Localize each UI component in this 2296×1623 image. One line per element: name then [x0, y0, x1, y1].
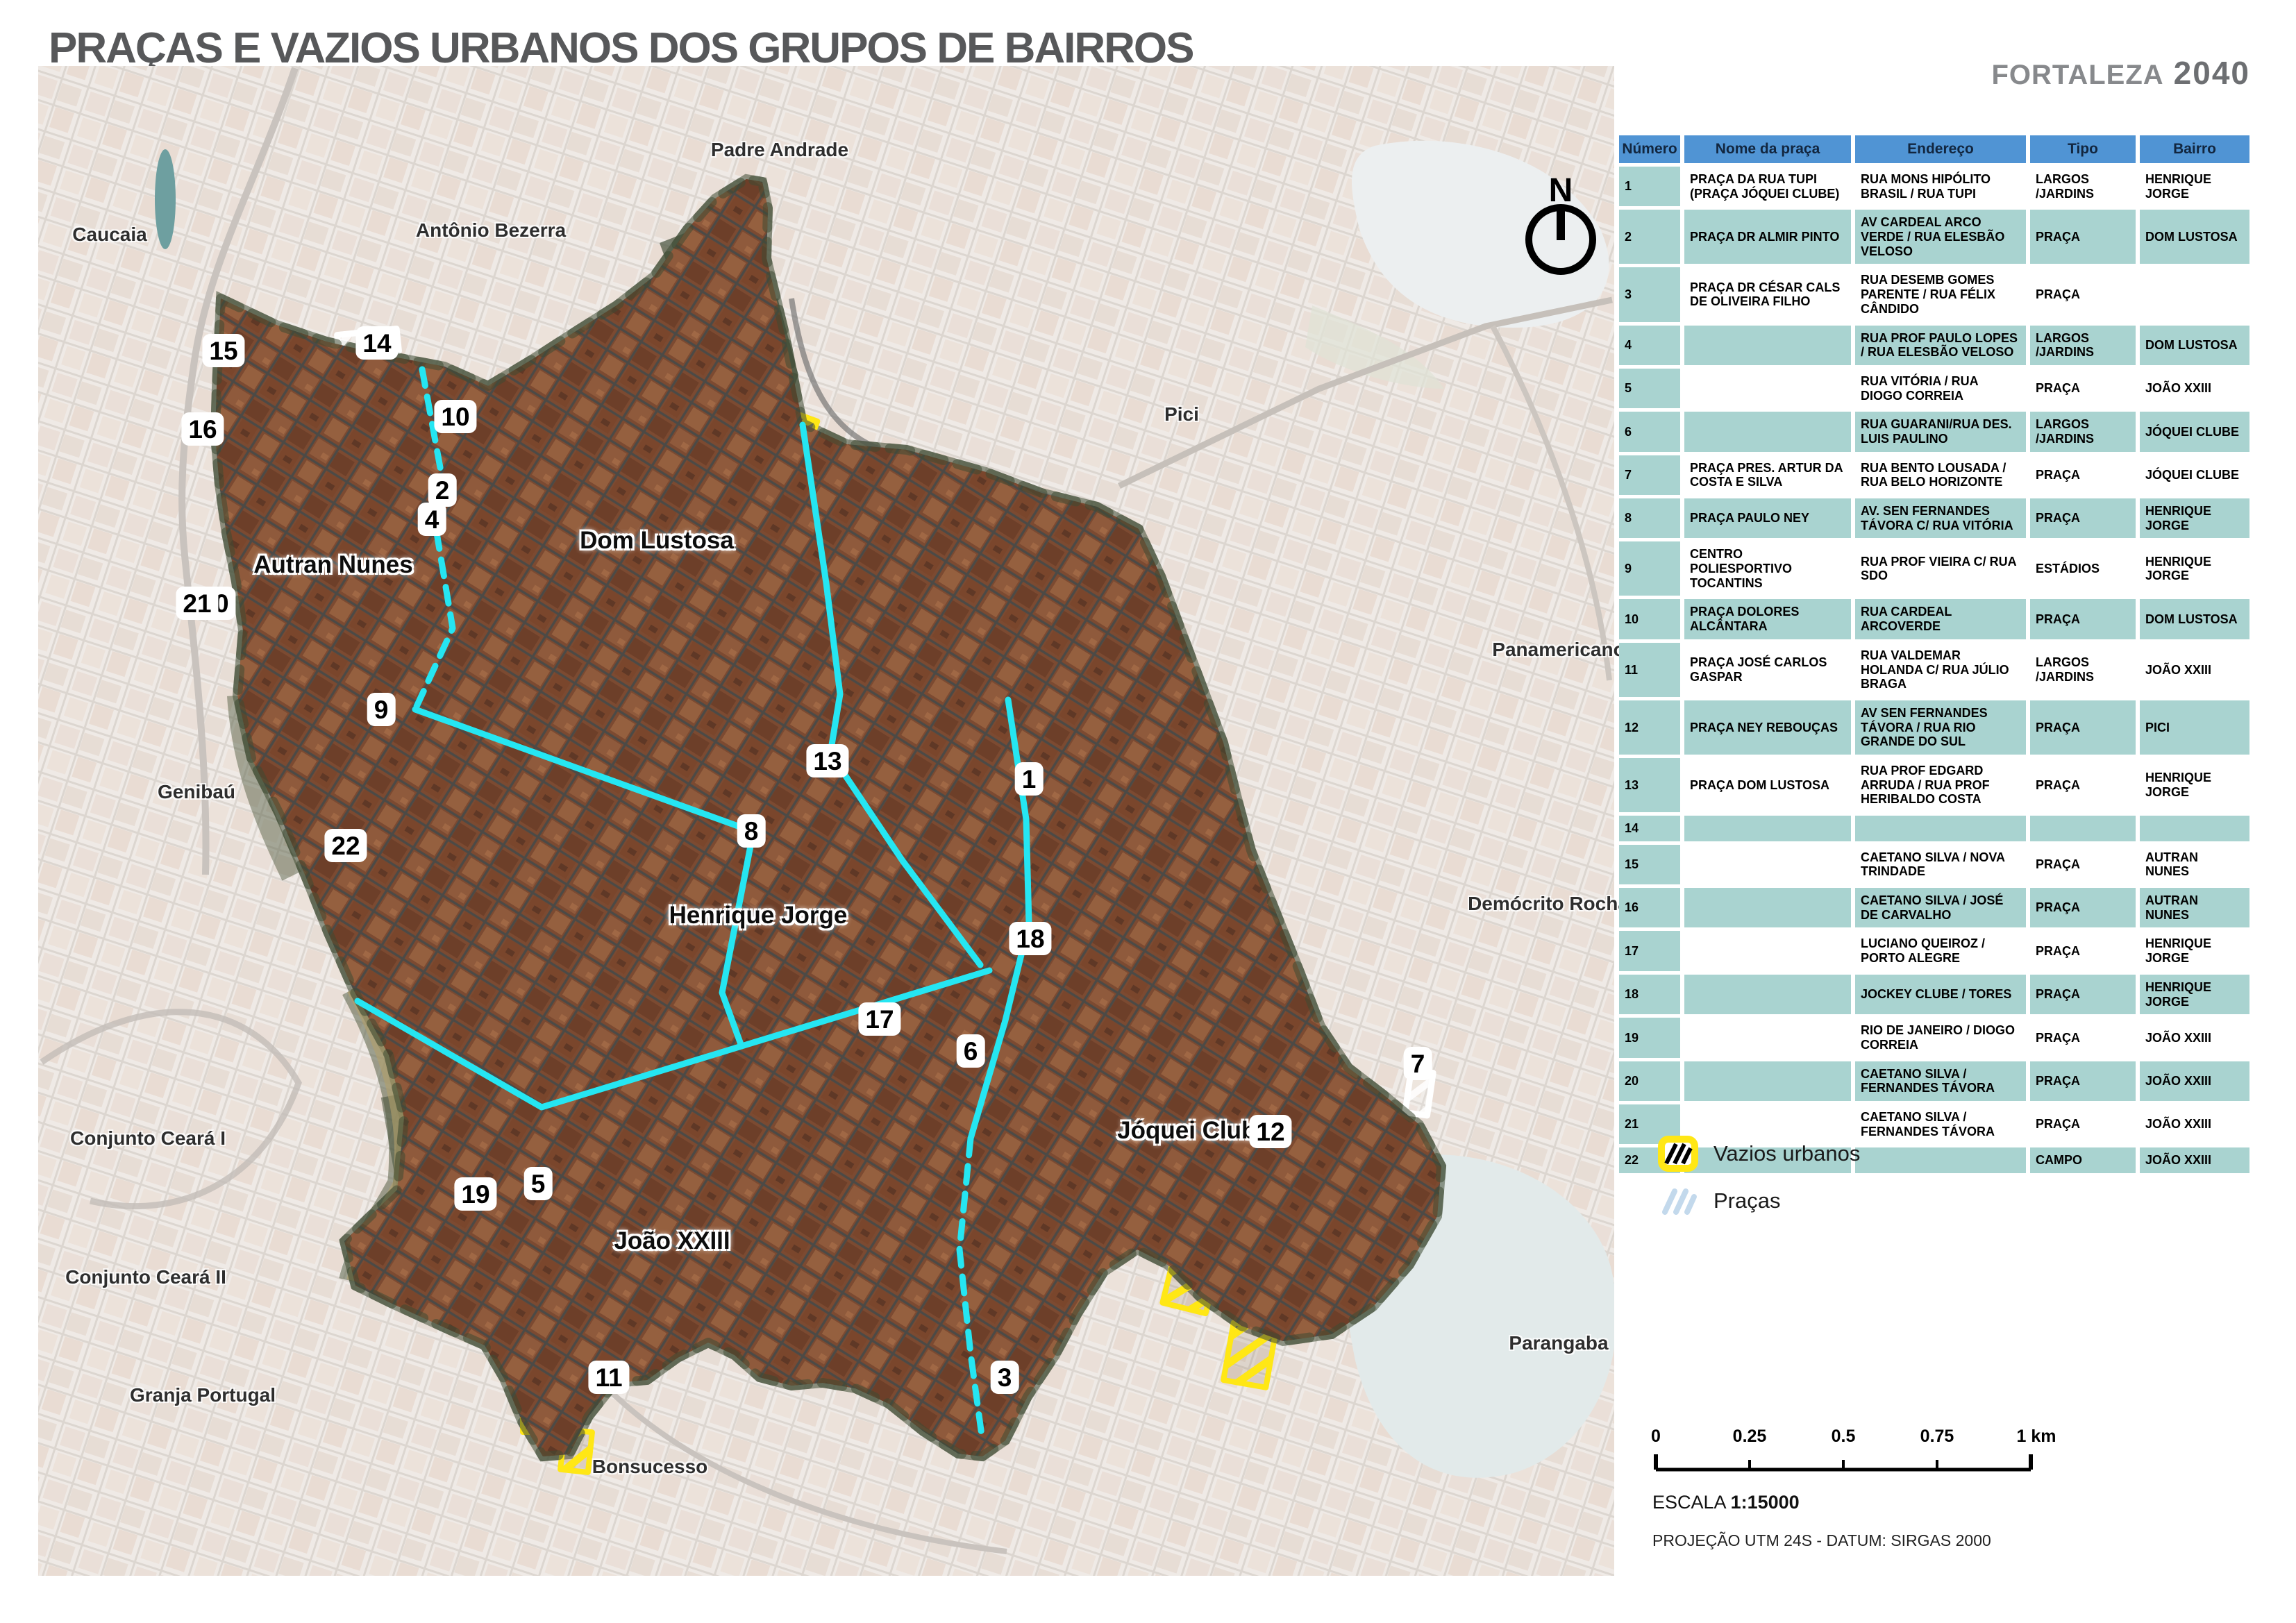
cell-nome [1684, 412, 1851, 451]
cell-tipo: PRAÇA [2030, 700, 2136, 755]
cell-nome [1684, 1018, 1851, 1057]
scale-tick-labels: 0 0.25 0.5 0.75 1 km [1652, 1427, 2097, 1450]
table-row: 17LUCIANO QUEIROZ / PORTO ALEGREPRAÇAHEN… [1619, 931, 2249, 970]
cell-numero: 17 [1619, 931, 1680, 970]
cell-tipo: PRAÇA [2030, 455, 2136, 495]
cell-numero: 6 [1619, 412, 1680, 451]
escala-label: ESCALA [1652, 1492, 1725, 1513]
table-row: 9CENTRO POLIESPORTIVO TOCANTINSRUA PROF … [1619, 541, 2249, 596]
cell-bairro: HENRIQUE JORGE [2140, 498, 2249, 538]
cell-endereco: RUA BENTO LOUSADA / RUA BELO HORIZONTE [1855, 455, 2026, 495]
brand-logo: FORTALEZA 2040 [1991, 54, 2250, 92]
cell-numero: 13 [1619, 758, 1680, 812]
cell-bairro: HENRIQUE JORGE [2140, 541, 2249, 596]
cell-bairro: DOM LUSTOSA [2140, 326, 2249, 365]
brand-year: 2040 [2174, 54, 2250, 92]
cell-numero: 7 [1619, 455, 1680, 495]
area-label: Genibaú [158, 781, 235, 803]
cell-nome [1684, 816, 1851, 841]
table-row: 10PRAÇA DOLORES ALCÂNTARARUA CARDEAL ARC… [1619, 599, 2249, 639]
scale-tick-05: 0.5 [1832, 1427, 1856, 1447]
district-label: Autran Nunes [253, 551, 412, 579]
cell-endereco: RUA CARDEAL ARCOVERDE [1855, 599, 2026, 639]
table-row: 3PRAÇA DR CÉSAR CALS DE OLIVEIRA FILHORU… [1619, 267, 2249, 321]
cell-tipo [2030, 816, 2136, 841]
cell-numero: 3 [1619, 267, 1680, 321]
cell-tipo: PRAÇA [2030, 498, 2136, 538]
cell-bairro: AUTRAN NUNES [2140, 845, 2249, 884]
cell-tipo: PRAÇA [2030, 599, 2136, 639]
map-marker-1[interactable]: 1 [1015, 762, 1044, 796]
cell-bairro: HENRIQUE JORGE [2140, 975, 2249, 1014]
cell-endereco: RUA VALDEMAR HOLANDA C/ RUA JÚLIO BRAGA [1855, 643, 2026, 697]
cell-bairro: PICI [2140, 700, 2249, 755]
cell-nome: PRAÇA PAULO NEY [1684, 498, 1851, 538]
cell-numero: 2 [1619, 210, 1680, 264]
scale-tick-075: 0.75 [1920, 1427, 1954, 1447]
cell-endereco: CAETANO SILVA / FERNANDES TÁVORA [1855, 1061, 2026, 1101]
poster-page: PRAÇAS E VAZIOS URBANOS DOS GRUPOS DE BA… [0, 0, 2296, 1623]
area-label: Caucaia [72, 224, 146, 246]
cell-nome [1684, 1061, 1851, 1101]
map-overlay: CaucaiaPadre AndradeAntônio BezerraPiciP… [38, 66, 1614, 1576]
legend-vazios-label: Vazios urbanos [1713, 1141, 1860, 1166]
map-marker-21[interactable]: 21 [176, 587, 218, 620]
cell-tipo: PRAÇA [2030, 888, 2136, 927]
area-label: Antônio Bezerra [416, 219, 566, 242]
cell-numero: 8 [1619, 498, 1680, 538]
map-marker-16[interactable]: 16 [181, 412, 224, 446]
cell-bairro: JOÃO XXIII [2140, 1147, 2249, 1173]
cell-bairro: JOÃO XXIII [2140, 1018, 2249, 1057]
cell-endereco: RUA MONS HIPÓLITO BRASIL / RUA TUPI [1855, 167, 2026, 206]
map-marker-7[interactable]: 7 [1404, 1047, 1432, 1080]
cell-tipo: PRAÇA [2030, 845, 2136, 884]
scale-tick-0: 0 [1651, 1427, 1661, 1447]
cell-nome [1684, 888, 1851, 927]
scale-block: 0 0.25 0.5 0.75 1 km ESCALA 1:15000 PROJ… [1652, 1427, 2097, 1550]
cell-numero: 4 [1619, 326, 1680, 365]
table-row: 4RUA PROF PAULO LOPES / RUA ELESBÃO VELO… [1619, 326, 2249, 365]
cell-endereco: RUA PROF PAULO LOPES / RUA ELESBÃO VELOS… [1855, 326, 2026, 365]
cell-endereco [1855, 1147, 2026, 1173]
map-marker-3[interactable]: 3 [991, 1361, 1019, 1394]
cell-nome: PRAÇA DOLORES ALCÂNTARA [1684, 599, 1851, 639]
table-row: 7PRAÇA PRES. ARTUR DA COSTA E SILVARUA B… [1619, 455, 2249, 495]
cell-numero: 18 [1619, 975, 1680, 1014]
map-marker-19[interactable]: 19 [454, 1177, 496, 1211]
map-marker-18[interactable]: 18 [1009, 922, 1051, 955]
area-label: Panamericano [1492, 639, 1625, 661]
cell-endereco: RUA PROF VIEIRA C/ RUA SDO [1855, 541, 2026, 596]
cell-tipo: LARGOS /JARDINS [2030, 167, 2136, 206]
map-marker-14[interactable]: 14 [355, 326, 398, 360]
cell-nome [1684, 369, 1851, 408]
cell-tipo: PRAÇA [2030, 1018, 2136, 1057]
cell-tipo: PRAÇA [2030, 1104, 2136, 1144]
cell-bairro: DOM LUSTOSA [2140, 599, 2249, 639]
cell-endereco: RUA GUARANI/RUA DES. LUIS PAULINO [1855, 412, 2026, 451]
table-row: 8PRAÇA PAULO NEYAV. SEN FERNANDES TÁVORA… [1619, 498, 2249, 538]
cell-numero: 12 [1619, 700, 1680, 755]
vazios-urbanos-swatch-icon [1658, 1136, 1698, 1172]
map-marker-6[interactable]: 6 [957, 1034, 985, 1068]
column-header: Nome da praça [1684, 135, 1851, 163]
cell-nome: PRAÇA NEY REBOUÇAS [1684, 700, 1851, 755]
cell-endereco: JOCKEY CLUBE / TORES [1855, 975, 2026, 1014]
column-header: Número [1619, 135, 1680, 163]
cell-tipo: ESTÁDIOS [2030, 541, 2136, 596]
cell-nome: PRAÇA DR ALMIR PINTO [1684, 210, 1851, 264]
cell-numero: 11 [1619, 643, 1680, 697]
cell-nome: CENTRO POLIESPORTIVO TOCANTINS [1684, 541, 1851, 596]
cell-tipo: PRAÇA [2030, 1061, 2136, 1101]
table-row: 12PRAÇA NEY REBOUÇASAV SEN FERNANDES TÁV… [1619, 700, 2249, 755]
cell-numero: 15 [1619, 845, 1680, 884]
table-row: 20CAETANO SILVA / FERNANDES TÁVORAPRAÇAJ… [1619, 1061, 2249, 1101]
cell-numero: 9 [1619, 541, 1680, 596]
cell-tipo: PRAÇA [2030, 758, 2136, 812]
cell-numero: 10 [1619, 599, 1680, 639]
scale-bar-icon [1652, 1450, 2069, 1472]
cell-bairro [2140, 267, 2249, 321]
cell-bairro: JÓQUEI CLUBE [2140, 455, 2249, 495]
table-row: 11PRAÇA JOSÉ CARLOS GASPARRUA VALDEMAR H… [1619, 643, 2249, 697]
cell-bairro: JOÃO XXIII [2140, 1061, 2249, 1101]
cell-tipo: PRAÇA [2030, 975, 2136, 1014]
cell-nome: PRAÇA JOSÉ CARLOS GASPAR [1684, 643, 1851, 697]
area-label: Bonsucesso [592, 1456, 708, 1478]
scale-tick-1km: 1 km [2017, 1427, 2056, 1447]
map-marker-2[interactable]: 2 [428, 473, 457, 507]
cell-nome [1684, 326, 1851, 365]
table-row: 18JOCKEY CLUBE / TORESPRAÇAHENRIQUE JORG… [1619, 975, 2249, 1014]
table-row: 16CAETANO SILVA / JOSÉ DE CARVALHOPRAÇAA… [1619, 888, 2249, 927]
cell-bairro [2140, 816, 2249, 841]
cell-endereco: LUCIANO QUEIROZ / PORTO ALEGRE [1855, 931, 2026, 970]
district-label: Jóquei Clube [1117, 1117, 1270, 1145]
map-marker-12[interactable]: 12 [1249, 1115, 1291, 1148]
map-marker-4[interactable]: 4 [418, 503, 446, 536]
cell-nome [1684, 931, 1851, 970]
column-header: Bairro [2140, 135, 2249, 163]
cell-numero: 19 [1619, 1018, 1680, 1057]
cell-endereco: CAETANO SILVA / FERNANDES TÁVORA [1855, 1104, 2026, 1144]
cell-bairro: AUTRAN NUNES [2140, 888, 2249, 927]
table-row: 2PRAÇA DR ALMIR PINTOAV CARDEAL ARCO VER… [1619, 210, 2249, 264]
district-label: Dom Lustosa [580, 527, 734, 555]
cell-numero: 16 [1619, 888, 1680, 927]
cell-endereco: AV CARDEAL ARCO VERDE / RUA ELESBÃO VELO… [1855, 210, 2026, 264]
cell-numero: 20 [1619, 1061, 1680, 1101]
area-label: Parangaba [1509, 1332, 1608, 1354]
map-marker-22[interactable]: 22 [324, 829, 367, 862]
cell-bairro: JOÃO XXIII [2140, 1104, 2249, 1144]
map-marker-10[interactable]: 10 [434, 400, 476, 433]
cell-bairro: HENRIQUE JORGE [2140, 167, 2249, 206]
map-marker-5[interactable]: 5 [524, 1167, 553, 1200]
table-row: 14 [1619, 816, 2249, 841]
cell-bairro: JOÃO XXIII [2140, 643, 2249, 697]
district-label: Henrique Jorge [669, 902, 848, 930]
column-header: Tipo [2030, 135, 2136, 163]
legend-item-pracas: Praças [1658, 1183, 1860, 1219]
cell-endereco: CAETANO SILVA / NOVA TRINDADE [1855, 845, 2026, 884]
table-row: 6RUA GUARANI/RUA DES. LUIS PAULINOLARGOS… [1619, 412, 2249, 451]
map-legend: Vazios urbanos Praças [1658, 1136, 1860, 1230]
column-header: Endereço [1855, 135, 2026, 163]
cell-tipo: LARGOS /JARDINS [2030, 412, 2136, 451]
cell-nome [1684, 975, 1851, 1014]
cell-endereco: AV SEN FERNANDES TÁVORA / RUA RIO GRANDE… [1855, 700, 2026, 755]
cell-tipo: PRAÇA [2030, 931, 2136, 970]
area-label: Pici [1164, 403, 1199, 426]
cell-endereco: RIO DE JANEIRO / DIOGO CORREIA [1855, 1018, 2026, 1057]
legend-pracas-label: Praças [1713, 1188, 1780, 1213]
table-row: 15CAETANO SILVA / NOVA TRINDADEPRAÇAAUTR… [1619, 845, 2249, 884]
cell-bairro: HENRIQUE JORGE [2140, 758, 2249, 812]
cell-nome: PRAÇA DOM LUSTOSA [1684, 758, 1851, 812]
map-marker-8[interactable]: 8 [737, 814, 766, 848]
area-label: Demócrito Rocha [1468, 893, 1629, 915]
area-label: Padre Andrade [711, 139, 848, 161]
map-marker-11[interactable]: 11 [588, 1361, 629, 1394]
cell-tipo: PRAÇA [2030, 210, 2136, 264]
area-label: Conjunto Ceará II [65, 1266, 226, 1288]
cell-bairro: JOÃO XXIII [2140, 369, 2249, 408]
cell-endereco: RUA DESEMB GOMES PARENTE / RUA FÉLIX CÂN… [1855, 267, 2026, 321]
cell-nome [1684, 845, 1851, 884]
cell-tipo: PRAÇA [2030, 369, 2136, 408]
table-header: NúmeroNome da praçaEndereçoTipoBairro [1619, 135, 2249, 163]
brand-name: FORTALEZA [1991, 60, 2163, 91]
area-label: Conjunto Ceará I [70, 1127, 226, 1150]
escala-value: 1:15000 [1731, 1492, 1800, 1513]
cell-endereco [1855, 816, 2026, 841]
projection-note: PROJEÇÃO UTM 24S - DATUM: SIRGAS 2000 [1652, 1531, 2097, 1550]
map-marker-15[interactable]: 15 [202, 334, 244, 367]
table-row: 13PRAÇA DOM LUSTOSARUA PROF EDGARD ARRUD… [1619, 758, 2249, 812]
pracas-swatch-icon [1658, 1183, 1698, 1219]
cell-endereco: RUA VITÓRIA / RUA DIOGO CORREIA [1855, 369, 2026, 408]
table-row: 1PRAÇA DA RUA TUPI (PRAÇA JÓQUEI CLUBE)R… [1619, 167, 2249, 206]
cell-nome: PRAÇA DR CÉSAR CALS DE OLIVEIRA FILHO [1684, 267, 1851, 321]
cell-tipo: LARGOS /JARDINS [2030, 326, 2136, 365]
cell-tipo: PRAÇA [2030, 267, 2136, 321]
map-marker-13[interactable]: 13 [806, 744, 848, 777]
area-label: Granja Portugal [130, 1384, 276, 1406]
cell-endereco: AV. SEN FERNANDES TÁVORA C/ RUA VITÓRIA [1855, 498, 2026, 538]
cell-numero: 5 [1619, 369, 1680, 408]
cell-endereco: RUA PROF EDGARD ARRUDA / RUA PROF HERIBA… [1855, 758, 2026, 812]
table-row: 19RIO DE JANEIRO / DIOGO CORREIAPRAÇAJOÃ… [1619, 1018, 2249, 1057]
cell-tipo: LARGOS /JARDINS [2030, 643, 2136, 697]
district-label: João XXIII [614, 1227, 730, 1255]
cell-bairro: JÓQUEI CLUBE [2140, 412, 2249, 451]
cell-nome: PRAÇA PRES. ARTUR DA COSTA E SILVA [1684, 455, 1851, 495]
cell-bairro: DOM LUSTOSA [2140, 210, 2249, 264]
map-canvas[interactable]: N CaucaiaPadre AndradeAntônio BezerraPic… [38, 66, 1614, 1576]
scale-tick-025: 0.25 [1733, 1427, 1767, 1447]
map-marker-17[interactable]: 17 [858, 1002, 900, 1036]
squares-table: NúmeroNome da praçaEndereçoTipoBairro 1P… [1615, 132, 2254, 1177]
table-row: 5RUA VITÓRIA / RUA DIOGO CORREIAPRAÇAJOÃ… [1619, 369, 2249, 408]
map-marker-9[interactable]: 9 [367, 693, 396, 726]
cell-endereco: CAETANO SILVA / JOSÉ DE CARVALHO [1855, 888, 2026, 927]
cell-tipo: CAMPO [2030, 1147, 2136, 1173]
cell-numero: 14 [1619, 816, 1680, 841]
legend-item-vazios: Vazios urbanos [1658, 1136, 1860, 1172]
cell-bairro: HENRIQUE JORGE [2140, 931, 2249, 970]
scale-ratio: ESCALA 1:15000 [1652, 1492, 2097, 1513]
cell-numero: 1 [1619, 167, 1680, 206]
cell-nome: PRAÇA DA RUA TUPI (PRAÇA JÓQUEI CLUBE) [1684, 167, 1851, 206]
